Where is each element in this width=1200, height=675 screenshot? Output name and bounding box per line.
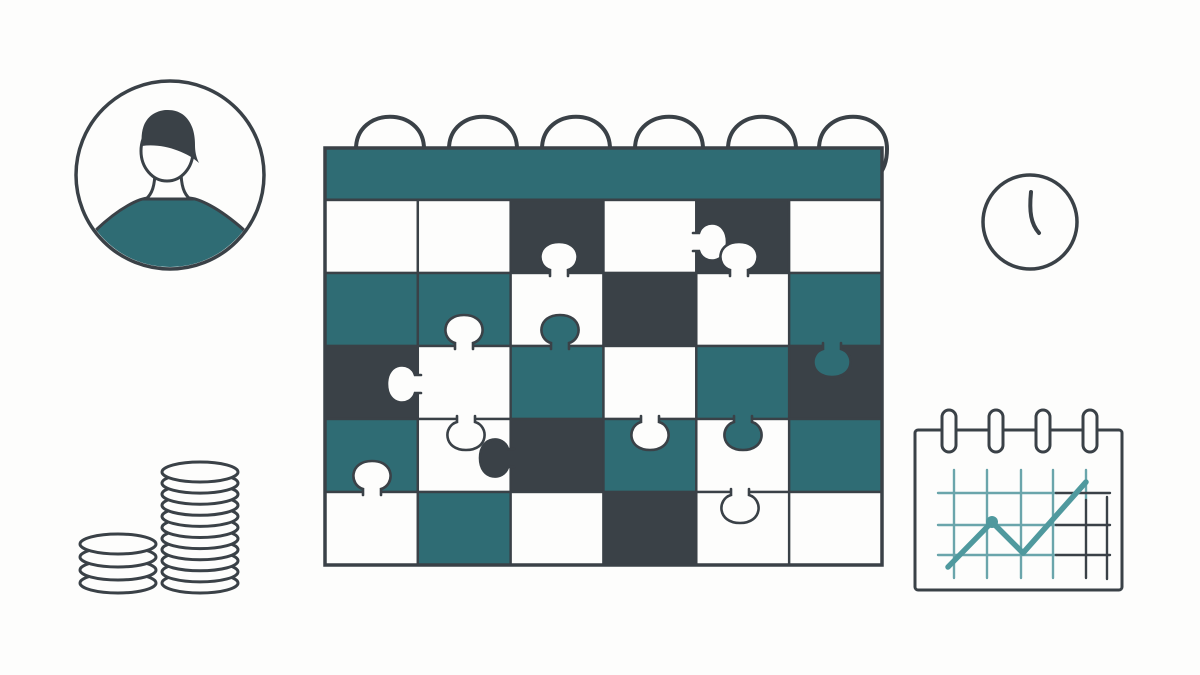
puzzle-cell [511, 346, 604, 419]
puzzle-cell [789, 419, 882, 492]
puzzle-cell [511, 419, 604, 492]
clock-face [983, 175, 1077, 269]
puzzle-cell [325, 273, 418, 346]
puzzle-cell [511, 492, 604, 565]
clock-icon [983, 175, 1077, 269]
puzzle-cell [603, 273, 696, 346]
puzzle-cell [603, 200, 696, 273]
puzzle-cell [789, 273, 882, 346]
trend-peak-dot [986, 516, 998, 528]
puzzle-cell [603, 346, 696, 419]
puzzle-cell [418, 200, 511, 273]
puzzle-cell [325, 492, 418, 565]
coin-stacks-icon [80, 462, 238, 593]
puzzle-cell [418, 346, 511, 419]
mini-calendar-chart [915, 410, 1122, 590]
puzzle-cell [789, 492, 882, 565]
coin [162, 462, 238, 482]
puzzle-cell [325, 200, 418, 273]
puzzle-cell [696, 346, 789, 419]
puzzle-cell [789, 200, 882, 273]
user-avatar-icon [76, 81, 264, 275]
mini-binding-ring [1036, 410, 1050, 452]
puzzle-cell [696, 273, 789, 346]
mini-binding-ring [942, 410, 956, 452]
illustration-canvas [0, 0, 1200, 675]
coin [80, 534, 156, 554]
puzzle-calendar [325, 117, 887, 565]
puzzle-cell [418, 492, 511, 565]
scene-svg [0, 0, 1200, 675]
calendar-header-bar [325, 148, 882, 200]
puzzle-cell [603, 492, 696, 565]
mini-binding-ring [989, 410, 1003, 452]
mini-binding-ring [1083, 410, 1097, 452]
